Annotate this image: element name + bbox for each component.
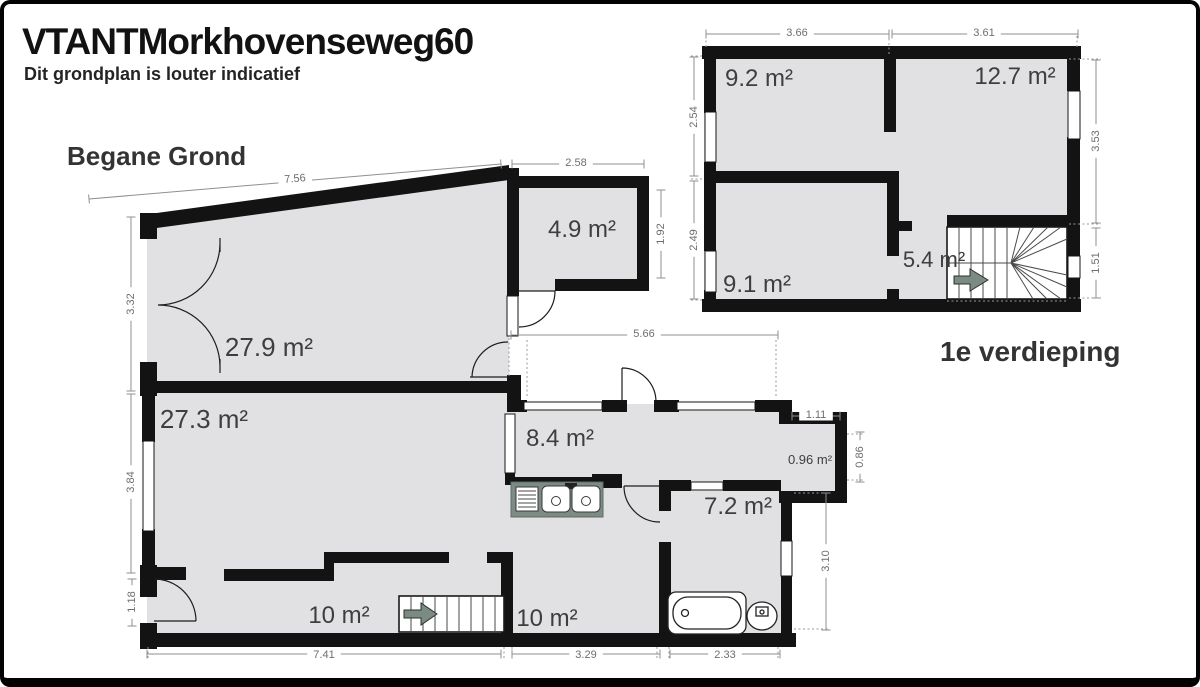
- room-label-porch: 0.96 m²: [788, 452, 833, 467]
- dim-storage-depth: 1.92: [654, 190, 668, 278]
- window: [524, 402, 602, 410]
- svg-text:1.11: 1.11: [806, 409, 827, 421]
- window: [507, 296, 518, 336]
- svg-text:2.58: 2.58: [565, 157, 586, 169]
- dim-storage-width: 2.58: [512, 156, 644, 170]
- window: [705, 251, 716, 292]
- dim-entrance: 1.18: [125, 579, 139, 626]
- floorplan-drawing: 7.56 2.58 1.92 3.32 3.84 1.18 7.41 3.29 …: [4, 4, 1196, 678]
- dim-porch-depth: 0.86: [853, 432, 867, 482]
- window: [781, 541, 792, 576]
- room-label-hallway: 10 m²: [308, 602, 369, 629]
- dim-left-back: 3.84: [124, 394, 138, 573]
- page-subtitle: Dit grondplan is louter indicatief: [24, 64, 301, 84]
- room-label-bathroom: 7.2 m²: [704, 493, 772, 520]
- window: [705, 112, 716, 162]
- window: [1068, 256, 1080, 278]
- bathtub-icon: [668, 592, 746, 634]
- svg-text:2.54: 2.54: [688, 106, 700, 127]
- svg-text:3.32: 3.32: [125, 293, 137, 314]
- room-label-bedroom-left: 9.2 m²: [725, 65, 793, 92]
- window: [677, 402, 755, 410]
- dim-first-top-right: 3.61: [892, 26, 1078, 40]
- svg-text:3.10: 3.10: [820, 550, 832, 571]
- dim-bottom-right: 2.33: [670, 648, 780, 662]
- dim-first-top-left: 3.66: [706, 26, 889, 40]
- svg-text:3.84: 3.84: [125, 471, 137, 492]
- dim-first-right-upper: 3.53: [1089, 60, 1103, 223]
- svg-text:3.61: 3.61: [973, 27, 994, 39]
- room-label-landing: 5.4 m²: [903, 247, 965, 272]
- svg-text:3.53: 3.53: [1090, 130, 1102, 151]
- svg-text:3.66: 3.66: [786, 27, 807, 39]
- svg-text:5.66: 5.66: [633, 328, 654, 340]
- dim-right-side: 3.10: [819, 493, 833, 630]
- door-swing: [519, 291, 555, 327]
- room-label-bedroom-back: 9.1 m²: [723, 271, 791, 298]
- dim-bottom-left: 7.41: [147, 648, 501, 662]
- dim-porch-width: 1.11: [792, 408, 840, 422]
- dim-hall-width: 5.66: [511, 327, 778, 341]
- svg-text:7.41: 7.41: [313, 649, 334, 661]
- room-label-living-back: 27.3 m²: [160, 404, 248, 434]
- window: [691, 482, 723, 490]
- window: [143, 441, 154, 531]
- svg-text:1.51: 1.51: [1090, 252, 1102, 273]
- svg-text:1.92: 1.92: [655, 223, 667, 244]
- floorplan-page: 7.56 2.58 1.92 3.32 3.84 1.18 7.41 3.29 …: [0, 0, 1200, 687]
- toilet-icon: [747, 602, 777, 630]
- ground-floor-title: Begane Grond: [67, 141, 246, 171]
- door-swing: [622, 368, 656, 402]
- window: [1068, 91, 1080, 139]
- svg-text:0.86: 0.86: [854, 446, 866, 467]
- dim-first-left-upper: 2.54: [687, 57, 701, 176]
- svg-text:7.56: 7.56: [284, 172, 306, 186]
- dim-bottom-middle: 3.29: [512, 648, 660, 662]
- svg-text:1.18: 1.18: [126, 591, 138, 612]
- page-title: VTANTMorkhovenseweg60: [22, 21, 474, 62]
- stairs-ground-floor: [399, 596, 504, 632]
- kitchen-counter-icon: [511, 482, 603, 517]
- room-label-living-front: 27.9 m²: [225, 332, 313, 362]
- first-floor-title: 1e verdieping: [940, 336, 1121, 367]
- dim-first-right-lower: 1.51: [1089, 228, 1103, 298]
- window: [505, 414, 515, 473]
- svg-text:2.49: 2.49: [688, 229, 700, 250]
- room-label-bedroom-right: 12.7 m²: [974, 63, 1055, 90]
- svg-text:3.29: 3.29: [575, 649, 596, 661]
- svg-text:2.33: 2.33: [714, 649, 735, 661]
- room-label-storage: 4.9 m²: [548, 216, 616, 243]
- dim-left-front: 3.32: [124, 217, 138, 391]
- room-label-hall: 8.4 m²: [526, 425, 594, 452]
- dim-first-left-lower: 2.49: [687, 181, 701, 299]
- room-label-back-room: 10 m²: [516, 605, 577, 632]
